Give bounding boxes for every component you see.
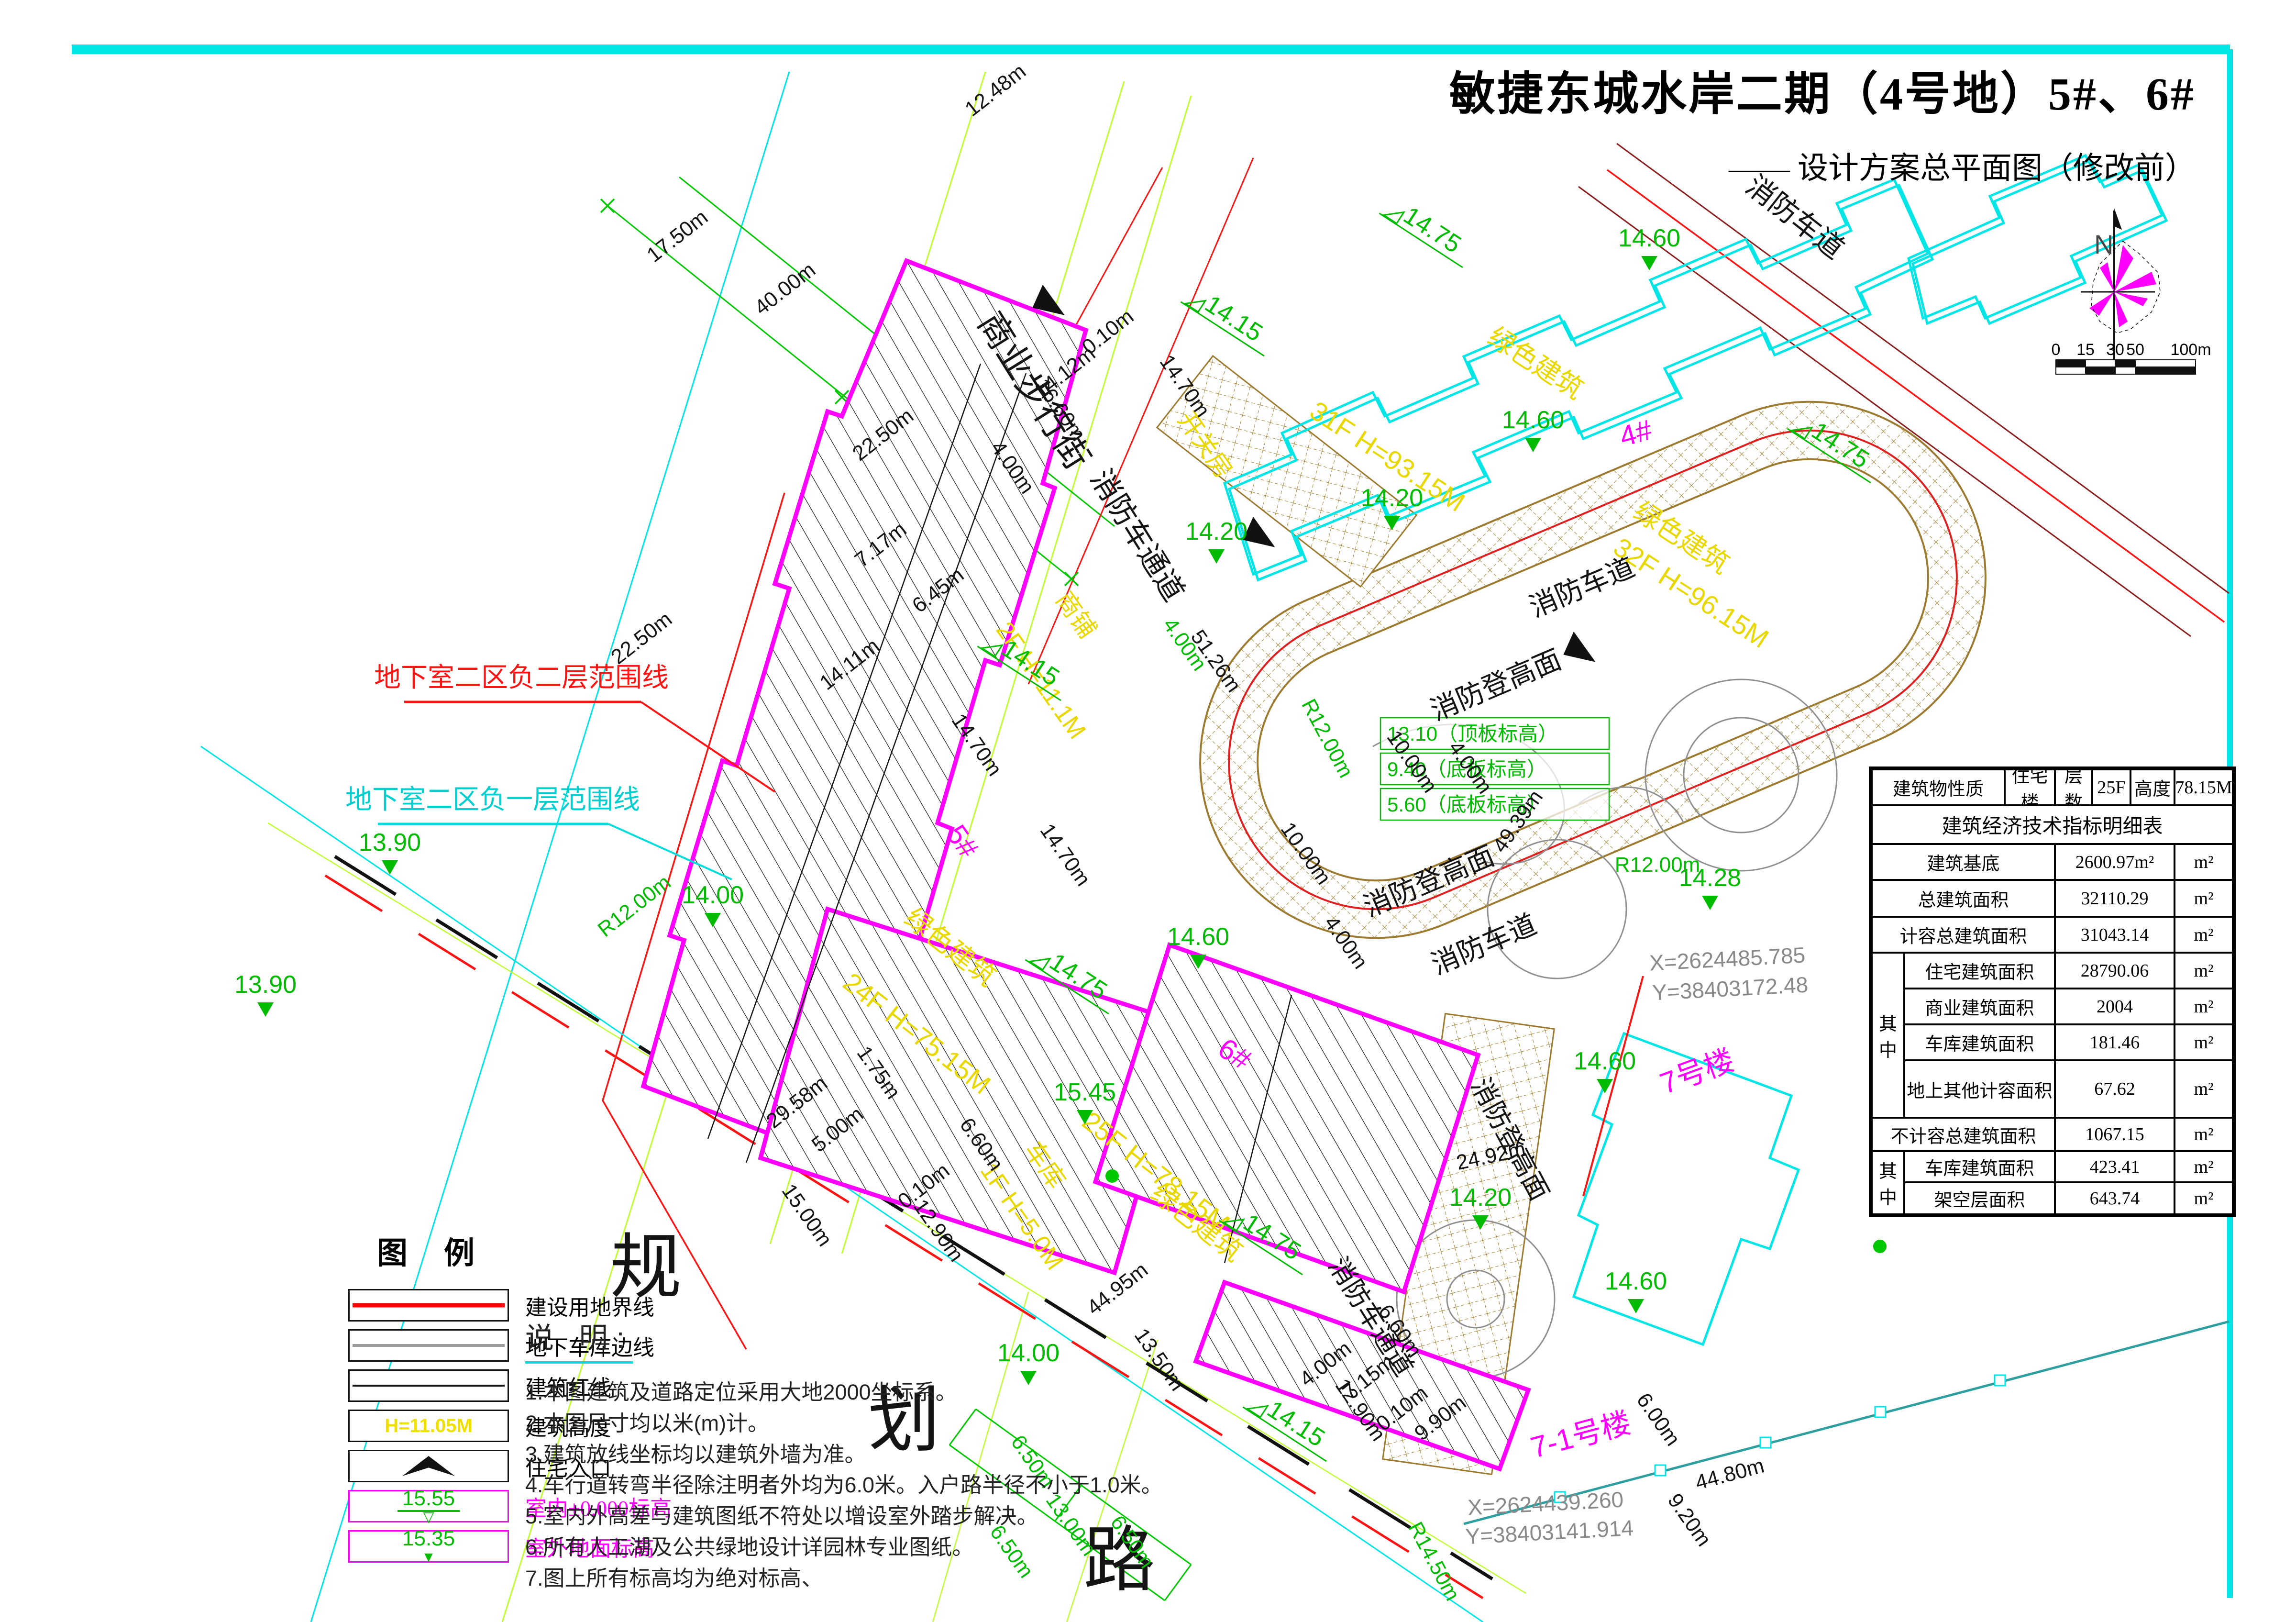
table-row-value: 643.74 (2055, 1182, 2175, 1214)
elevation-value: 14.20 (1361, 484, 1423, 512)
coord-y-2: Y=38403141.914 (1465, 1515, 1634, 1549)
elevation-marker: 14.60 (1605, 1267, 1667, 1313)
elevation-marker-slant: 14.15 (1181, 278, 1280, 356)
road-label-xiaofang-tongdao-1: 消防车通道 (1084, 464, 1191, 607)
table-header-cell: 25F (2092, 769, 2130, 805)
note-line: 4.车行道转弯半径除注明者外均为6.0米。入户路半径不小于1.0米。 (525, 1470, 1271, 1501)
table-row-unit: m² (2175, 1060, 2233, 1118)
dim: 6.00m (1632, 1389, 1685, 1450)
scale-tick: 15 (2076, 341, 2095, 359)
elevation-value: 13.90 (359, 829, 421, 856)
elevation-triangle-icon (257, 1002, 274, 1017)
elevation-marker: 14.60 (1618, 224, 1680, 270)
table-row-label: 建筑基底 (1872, 844, 2055, 880)
elevation-value: 14.75 (1399, 201, 1466, 259)
table-row-value: 67.62 (2055, 1060, 2175, 1118)
table-row-unit: m² (2175, 917, 2233, 953)
table-group-label: 其中 (1872, 1151, 1904, 1214)
coord-x-2: X=2624439.260 (1467, 1487, 1624, 1520)
elevation-value: 14.20 (1449, 1184, 1512, 1211)
building-tag-7: 7号楼 (1656, 1044, 1739, 1100)
table-row-value: 1067.15 (2055, 1118, 2175, 1151)
tree-icon (1105, 1169, 1119, 1183)
coord-y-1: Y=38403172.48 (1652, 972, 1809, 1005)
note-line: 1.本图建筑及道路定位采用大地2000坐标系。 (525, 1377, 1271, 1408)
height-text-icon: H=11.05M (385, 1415, 472, 1437)
elevation-marker: 13.90 (359, 829, 421, 875)
elevation-marker: 14.60 (1574, 1047, 1636, 1093)
dim: 9.20m (1663, 1489, 1716, 1551)
table-row-value: 32110.29 (2055, 880, 2175, 917)
notes-title: 说 明: (525, 1315, 633, 1364)
table-row-label: 地上其他计容面积 (1904, 1060, 2055, 1118)
table-header-cell: 78.15M (2175, 769, 2233, 805)
elevation-triangle-icon (1628, 1299, 1644, 1313)
table-row-value: 2004 (2055, 989, 2175, 1024)
dim: 22.50m (607, 607, 676, 669)
elevation-triangle-icon (1525, 438, 1541, 452)
table-row-value: 423.41 (2055, 1151, 2175, 1182)
dim: 12.48m (960, 59, 1030, 121)
table-row-label: 架空层面积 (1904, 1182, 2055, 1214)
note-line: 2.本图尺寸均以米(m)计。 (525, 1408, 1271, 1439)
table-row-unit: m² (2175, 1151, 2233, 1182)
indicator-table: 建筑物性质 住宅楼 层数 25F 高度 78.15M 建筑经济技术指标明细表 建… (1869, 767, 2236, 1217)
note-line: 5.室内外高差与建筑图纸不符处以增设室外踏步解决。 (525, 1501, 1271, 1532)
elevation-value: 14.60 (1605, 1267, 1667, 1295)
table-header-cell: 高度 (2130, 769, 2175, 805)
elevation-value: 14.20 (1185, 518, 1247, 545)
building-tag-7-1: 7-1号楼 (1527, 1406, 1634, 1465)
elevation-triangle-icon (1702, 896, 1718, 910)
elevation-marker: 14.20 (1185, 518, 1247, 564)
sheet-title: 敏捷东城水岸二期（4号地）5#、6# (1449, 56, 2196, 123)
table-row-label: 车库建筑面积 (1904, 1024, 2055, 1060)
elevation-value: 14.28 (1679, 864, 1741, 892)
elevation-triangle-icon (1641, 256, 1657, 270)
elevation-value: 14.60 (1502, 406, 1564, 434)
notes: 说 明: 1.本图建筑及道路定位采用大地2000坐标系。 2.本图尺寸均以米(m… (525, 1315, 1271, 1594)
legend-title: 图 例 (377, 1229, 740, 1273)
gray-line-icon (353, 1344, 505, 1347)
table-row-label: 计容总建筑面积 (1872, 917, 2055, 953)
callout-basement-2: 地下室二区负二层范围线 (374, 662, 669, 692)
table-header-cell: 住宅楼 (2005, 769, 2055, 805)
dim-green: R12.00m (594, 870, 675, 942)
elevation-value: 14.60 (1574, 1047, 1636, 1075)
coord-x-1: X=2624485.785 (1649, 943, 1806, 976)
scale-tick: 0 (2052, 341, 2061, 359)
black-line-icon (353, 1385, 505, 1387)
scale-tick: 50 (2126, 341, 2144, 359)
elevation-marker: 13.90 (234, 971, 297, 1017)
scale-tick: 30 (2106, 341, 2124, 359)
outdoor-level-icon: 15.35 (402, 1527, 455, 1550)
table-group-label: 其中 (1872, 953, 1904, 1118)
dim-green: R14.50m (1403, 1518, 1464, 1605)
table-row-label: 总建筑面积 (1872, 880, 2055, 917)
table-row-unit: m² (2175, 989, 2233, 1024)
table-row-value: 31043.14 (2055, 917, 2175, 953)
elevation-value: 14.00 (682, 881, 744, 909)
scale-bar: 0 15 30 50 100m (2052, 341, 2211, 374)
table-row-unit: m² (2175, 953, 2233, 989)
dim: 17.50m (642, 205, 712, 267)
elevation-triangle-icon (382, 860, 398, 875)
elevation-value: 14.15 (1200, 290, 1268, 347)
elevation-value: 13.90 (234, 971, 297, 999)
north-arrow-icon (2114, 208, 2122, 230)
elevation-marker: 14.28 (1679, 864, 1741, 910)
table-row-label: 商业建筑面积 (1904, 989, 2055, 1024)
table-row-value: 2600.97m² (2055, 844, 2175, 880)
elevation-value: 14.60 (1167, 923, 1229, 951)
note-line: 3.建筑放线坐标均以建筑外墙为准。 (525, 1439, 1271, 1470)
tree-icon (1873, 1240, 1887, 1253)
dim: 40.00m (750, 258, 820, 320)
table-header-cell: 建筑物性质 (1872, 769, 2005, 805)
table-caption: 建筑经济技术指标明细表 (1872, 805, 2233, 844)
table-row-unit: m² (2175, 1182, 2233, 1214)
table-row-label: 不计容总建筑面积 (1872, 1118, 2055, 1151)
table-row-label: 车库建筑面积 (1904, 1151, 2055, 1182)
table-row-unit: m² (2175, 1118, 2233, 1151)
elevation-value: 14.60 (1618, 224, 1680, 252)
table-row-value: 28790.06 (2055, 953, 2175, 989)
table-row-unit: m² (2175, 1024, 2233, 1060)
table-header-cell: 层数 (2055, 769, 2092, 805)
red-line-icon (353, 1303, 505, 1308)
callout-basement-1: 地下室二区负一层范围线 (345, 784, 640, 814)
elevation-value: 15.45 (1054, 1078, 1116, 1106)
table-row-unit: m² (2175, 880, 2233, 917)
elevation-triangle-icon (1597, 1079, 1613, 1093)
entry-arrow-icon (402, 1456, 455, 1476)
scale-tick: 100m (2170, 341, 2211, 359)
elevation-marker: 14.60 (1502, 406, 1564, 452)
indoor-level-icon: 15.55 (397, 1487, 460, 1512)
elevation-marker-slant: 14.75 (1379, 189, 1478, 267)
note-line: 6.所有人工湖及公共绿地设计详园林专业图纸。 (525, 1532, 1271, 1563)
elevation-triangle-icon (1208, 549, 1225, 564)
note-line: 7.图上所有标高均为绝对标高、 (525, 1563, 1271, 1594)
sheet-subtitle: —— 设计方案总平面图（修改前） (1729, 144, 2196, 188)
table-row-label: 住宅建筑面积 (1904, 953, 2055, 989)
dim: 14.70m (1036, 820, 1095, 890)
table-row-unit: m² (2175, 844, 2233, 880)
building-tag-4: 4# (1616, 413, 1656, 453)
table-row-value: 181.46 (2055, 1024, 2175, 1060)
north-label: N (2094, 229, 2113, 259)
site-plan-sheet: 13.10（顶板标高）9.40（底板标高）5.60（底板标高） 商业步行街消防车… (0, 0, 2296, 1622)
